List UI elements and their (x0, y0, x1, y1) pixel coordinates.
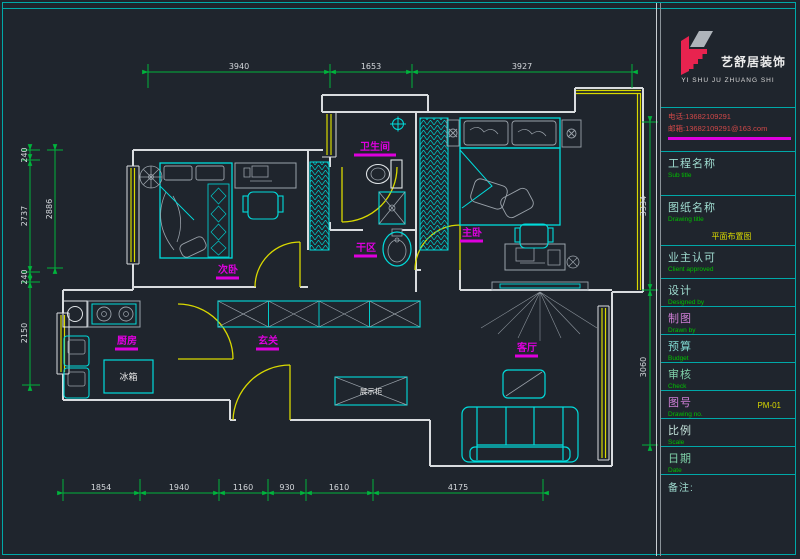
title-block: 艺舒居装饰 YI SHU JU ZHUANG SHI 电话:1368210929… (661, 3, 795, 555)
row-label-en: Drawn by (668, 327, 795, 334)
dim-left-5: 2150 (20, 323, 29, 343)
kitchen-door-arc (178, 304, 233, 359)
row-label-en: Scale (668, 439, 795, 446)
fridge-box: 冰箱 (104, 360, 153, 393)
kitchen-appliances-icon (64, 336, 89, 398)
tv-rays (481, 292, 597, 341)
basin-icon (383, 229, 411, 266)
room-label-dry-area: 干区 (356, 242, 376, 254)
row-label-en: Sub title (668, 172, 795, 179)
room-label-bathroom: 卫生间 (360, 140, 390, 153)
walls (63, 88, 643, 466)
dim-bottom-1: 1854 (91, 483, 111, 492)
drawing-number-value: PM-01 (757, 401, 781, 410)
underline (216, 277, 239, 280)
titleblock-row-designed-by: 设计 Designed by (661, 278, 795, 306)
room-label-kitchen: 厨房 (117, 334, 137, 347)
company-logo-block: 艺舒居装饰 YI SHU JU ZHUANG SHI (661, 3, 795, 107)
titleblock-row-drawing-title: 图纸名称 Drawing title 平面布置图 (661, 195, 795, 245)
dim-top-2: 1653 (361, 62, 381, 71)
row-label-cn: 设计 (668, 282, 795, 298)
stove-icon (88, 301, 140, 327)
row-label-en: Date (668, 467, 795, 474)
bathroom-door-arc (342, 167, 397, 222)
dim-bottom-3: 1160 (233, 483, 253, 492)
row-label-en: Budget (668, 355, 795, 362)
master-wardrobe-hatch (420, 118, 448, 250)
display-cabinet-label: 展示柜 (360, 386, 383, 396)
fridge-label: 冰箱 (119, 371, 137, 383)
row-label-cn: 日期 (668, 450, 795, 466)
dim-bottom-2: 1940 (169, 483, 189, 492)
titleblock-row-budget: 预算 Budget (661, 334, 795, 362)
dim-left-3: 2737 (20, 206, 29, 226)
nightstand-right-icon (562, 120, 581, 147)
bedroom2-door-arc (255, 242, 300, 287)
dim-right-1: 3334 (639, 196, 648, 216)
titleblock-row-check: 审核 Check (661, 362, 795, 390)
contact-block: 电话:13682109291 邮箱:13682109291@163.com (661, 107, 795, 151)
dim-bottom-4: 930 (279, 483, 294, 492)
room-label-second-bedroom: 次卧 (218, 263, 238, 276)
titleblock-row-client-approved: 业主认可 Client approved (661, 245, 795, 278)
row-label-cn: 制图 (668, 310, 795, 326)
room-label-living-room: 客厅 (516, 341, 537, 354)
row-label-cn: 工程名称 (668, 155, 795, 171)
company-name-pinyin: YI SHU JU ZHUANG SHI (661, 77, 795, 84)
row-label-cn: 审核 (668, 366, 795, 382)
ceiling-light-icon (390, 117, 406, 132)
dim-left-1: 240 (20, 147, 29, 162)
phone-number: 电话:13682109291 (668, 111, 795, 123)
titleblock-separator (656, 3, 657, 556)
shower-box-icon (379, 192, 405, 224)
dim-bottom-5: 1610 (329, 483, 349, 492)
chair2-icon (243, 192, 283, 219)
titleblock-row-date: 日期 Date (661, 446, 795, 474)
note-label: 备注: (668, 483, 694, 494)
underline (354, 255, 377, 258)
underline (354, 154, 396, 157)
corner-fan-icon (140, 166, 162, 188)
row-label-cn: 比例 (668, 422, 795, 438)
titleblock-row-drawing-no: 图号 Drawing no. PM-01 (661, 390, 795, 418)
row-label-cn: 图纸名称 (668, 199, 795, 215)
drawing-title-value: 平面布置图 (668, 231, 795, 242)
row-label-en: Client approved (668, 266, 795, 273)
cad-sheet: 冰箱 展示柜 卫生间 干区 主卧 (0, 0, 800, 559)
wardrobe2-hatch (310, 162, 329, 250)
company-logo-icon (677, 29, 719, 75)
entry-door-arc (233, 365, 290, 420)
kitchen-sink-icon (63, 301, 87, 327)
titleblock-row-scale: 比例 Scale (661, 418, 795, 446)
dim-top-1: 3940 (229, 62, 249, 71)
row-label-cn: 预算 (668, 338, 795, 354)
room-label-master-bedroom: 主卧 (462, 226, 482, 239)
titleblock-row-project-name: 工程名称 Sub title (661, 151, 795, 195)
row-label-cn: 业主认可 (668, 249, 795, 265)
master-bed-icon (460, 118, 560, 225)
nightstand-left-icon (447, 120, 459, 146)
underline (460, 240, 483, 243)
dim-bottom-6: 4175 (448, 483, 468, 492)
dim-left-2: 2886 (45, 199, 54, 219)
floor-plan-canvas[interactable]: 冰箱 展示柜 卫生间 干区 主卧 (0, 0, 660, 559)
row-label-en: Check (668, 383, 795, 390)
shoe-cabinet (218, 301, 420, 327)
titleblock-row-drawn-by: 制图 Drawn by (661, 306, 795, 334)
row-label-en: Drawing no. (668, 411, 795, 418)
window-glass-lines (61, 91, 641, 459)
coffee-table-icon (503, 370, 545, 398)
email-address: 邮箱:13682109291@163.com (668, 123, 795, 135)
tv-console-icon (492, 282, 588, 290)
contact-underline (668, 137, 791, 140)
underline (515, 355, 538, 358)
dim-left-4: 240 (20, 269, 29, 284)
sofa-icon (462, 407, 578, 462)
underline (115, 348, 138, 351)
company-name: 艺舒居装饰 (721, 53, 786, 70)
row-label-en: Drawing title (668, 216, 795, 223)
titleblock-row-note: 备注: (661, 474, 795, 555)
room-label-entry: 玄关 (258, 334, 278, 347)
bed2-icon (160, 163, 232, 259)
display-cabinet: 展示柜 (335, 377, 407, 405)
row-label-en: Designed by (668, 299, 795, 306)
dimension-texts: 3940 1653 3927 1854 1940 1160 930 1610 4… (20, 62, 648, 492)
dim-right-2: 3060 (639, 357, 648, 377)
underline (256, 348, 279, 351)
desk2-icon (235, 163, 296, 188)
dim-top-3: 3927 (512, 62, 532, 71)
